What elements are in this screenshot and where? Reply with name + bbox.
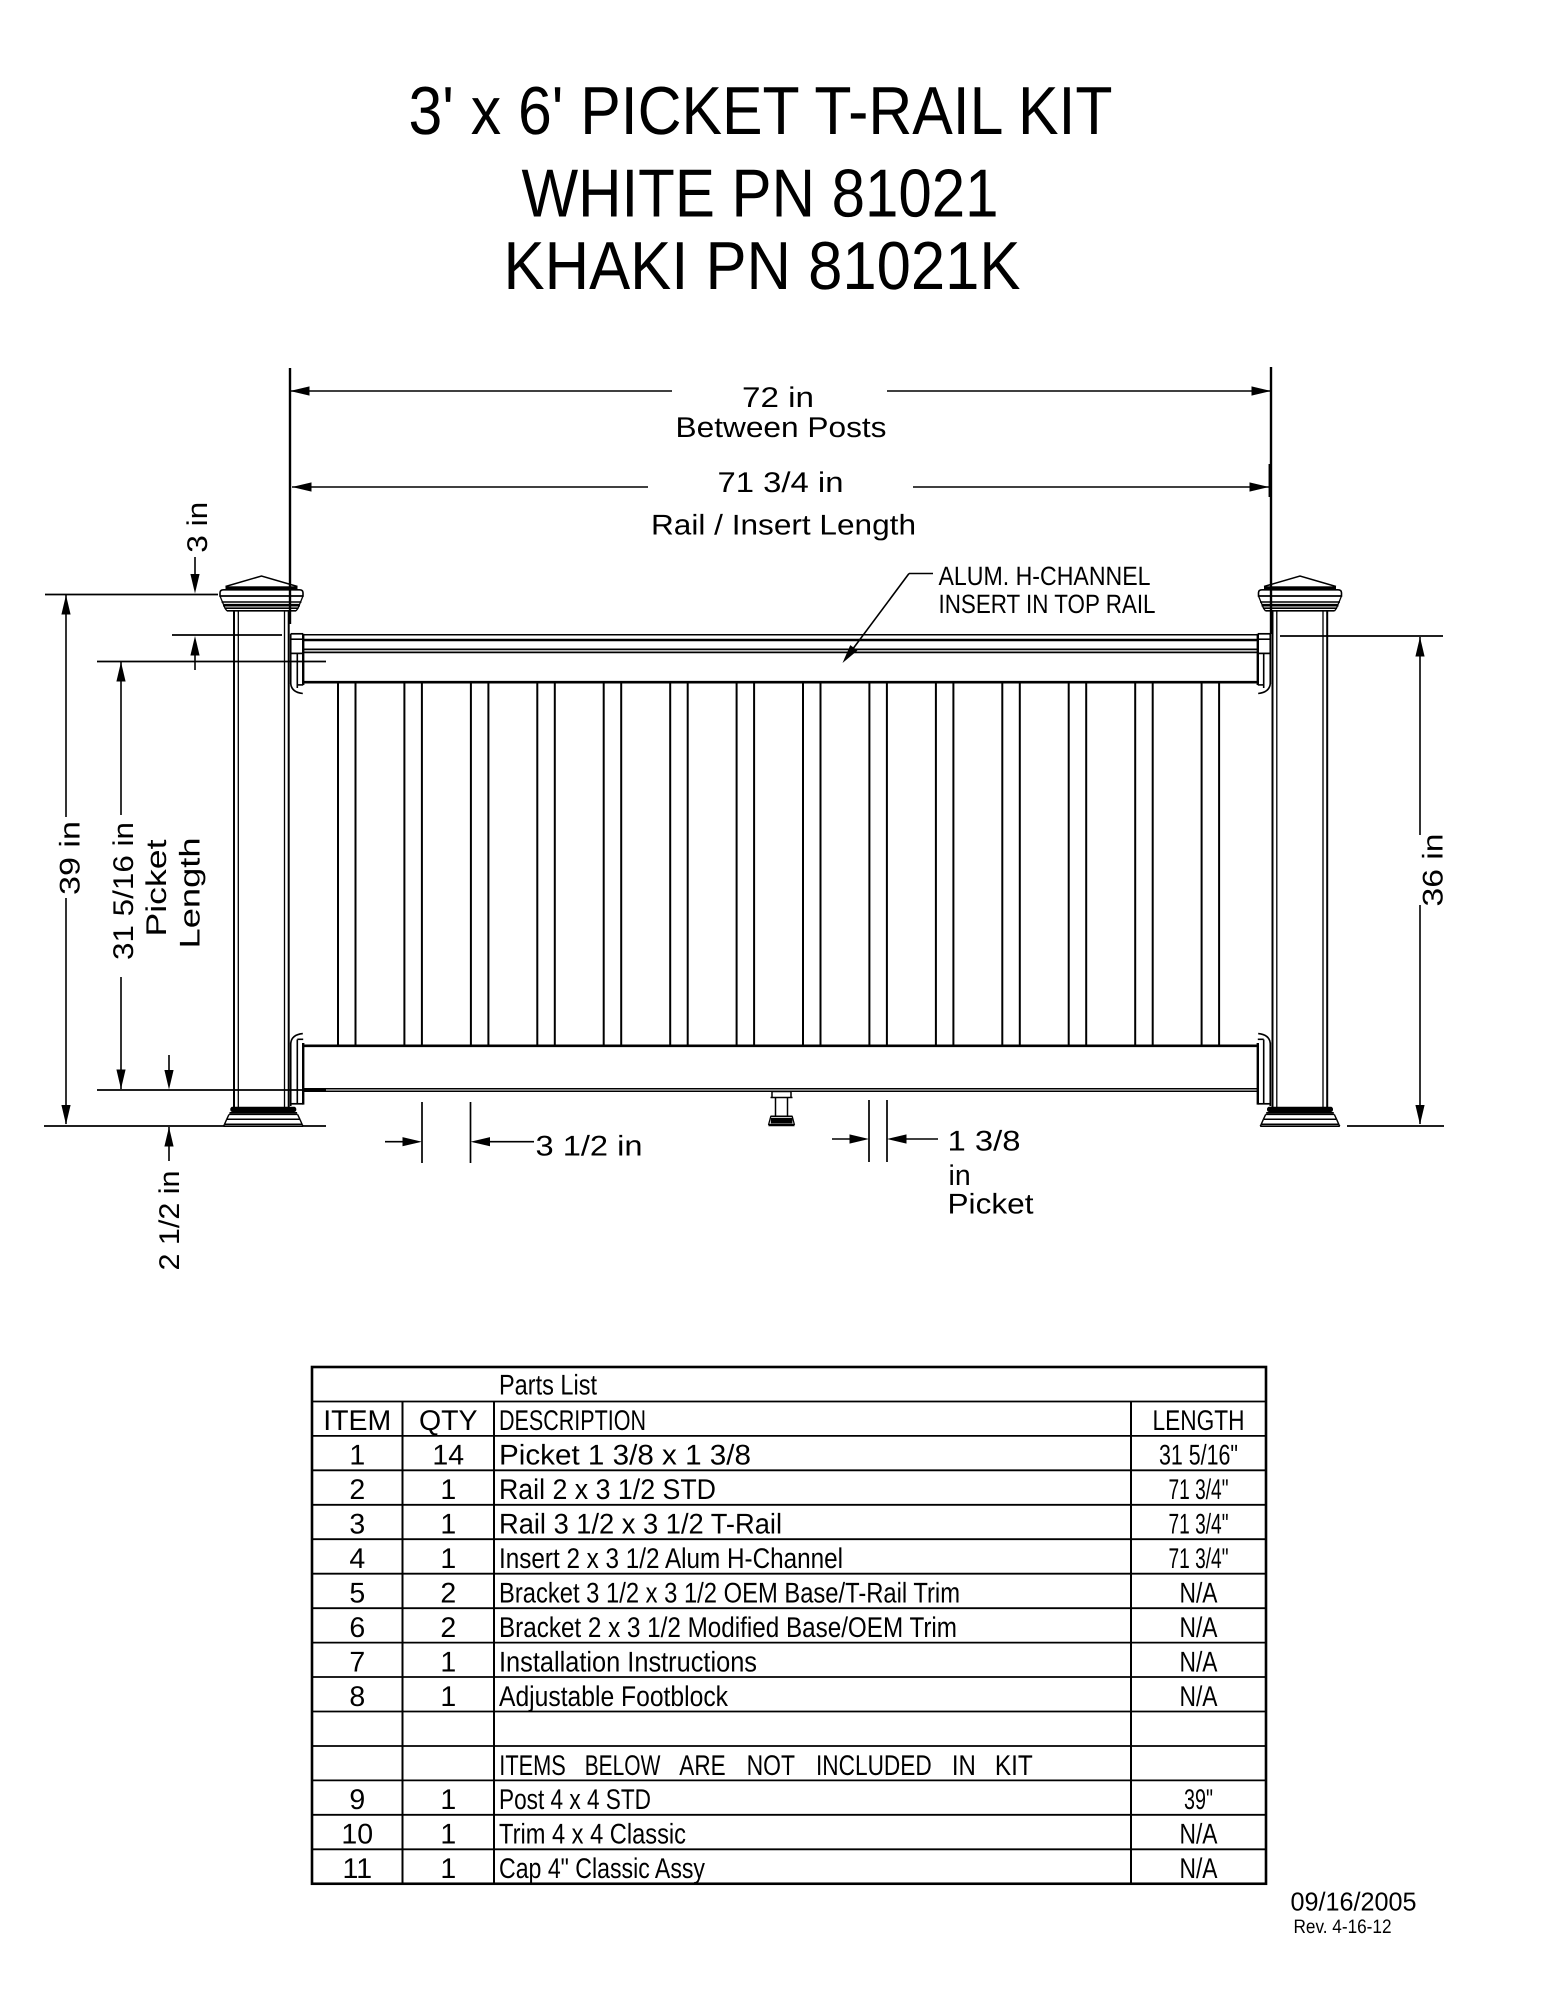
svg-text:1: 1 [349, 1440, 365, 1472]
svg-text:Insert 2 x 3 1/2 Alum H-Channe: Insert 2 x 3 1/2 Alum H-Channel [499, 1543, 843, 1575]
svg-text:1: 1 [440, 1646, 456, 1678]
svg-text:Rev. 4-16-12: Rev. 4-16-12 [1294, 1916, 1392, 1938]
svg-text:N/A: N/A [1180, 1853, 1218, 1885]
svg-text:KHAKI PN 81021K: KHAKI PN 81021K [504, 228, 1021, 304]
svg-text:Length: Length [175, 838, 207, 949]
svg-text:72 in: 72 in [742, 382, 814, 414]
svg-text:1: 1 [440, 1474, 456, 1506]
svg-text:1: 1 [440, 1853, 456, 1885]
svg-text:39 in: 39 in [55, 821, 87, 895]
svg-text:N/A: N/A [1180, 1612, 1218, 1644]
svg-text:39": 39" [1184, 1784, 1213, 1816]
svg-text:11: 11 [342, 1853, 372, 1885]
svg-text:31 5/16 in: 31 5/16 in [108, 822, 140, 960]
svg-text:IN: IN [952, 1750, 976, 1782]
svg-text:71 3/4": 71 3/4" [1169, 1509, 1229, 1541]
svg-text:3 1/2 in: 3 1/2 in [536, 1131, 643, 1163]
svg-text:Rail 2 x 3 1/2 STD: Rail 2 x 3 1/2 STD [499, 1474, 716, 1506]
svg-text:ITEMS: ITEMS [499, 1750, 566, 1782]
svg-text:Trim 4 x 4 Classic: Trim 4 x 4 Classic [499, 1819, 686, 1851]
svg-text:3 in: 3 in [182, 502, 214, 553]
svg-text:in: in [949, 1160, 971, 1192]
svg-text:71 3/4 in: 71 3/4 in [718, 467, 844, 499]
svg-text:NOT: NOT [747, 1750, 795, 1782]
svg-text:71 3/4": 71 3/4" [1169, 1474, 1229, 1506]
svg-text:8: 8 [349, 1681, 365, 1713]
svg-text:6: 6 [349, 1612, 365, 1644]
svg-text:1: 1 [440, 1784, 456, 1816]
svg-text:QTY: QTY [419, 1405, 478, 1437]
svg-text:36 in: 36 in [1418, 834, 1450, 907]
svg-text:Installation Instructions: Installation Instructions [499, 1646, 757, 1678]
svg-text:N/A: N/A [1180, 1578, 1218, 1610]
svg-text:INSERT IN TOP RAIL: INSERT IN TOP RAIL [939, 589, 1156, 619]
svg-text:Picket: Picket [141, 839, 173, 936]
svg-text:KIT: KIT [995, 1750, 1033, 1782]
svg-text:4: 4 [349, 1543, 365, 1575]
svg-text:2: 2 [440, 1578, 456, 1610]
svg-text:71 3/4": 71 3/4" [1169, 1543, 1229, 1575]
svg-text:Rail 3 1/2 x 3 1/2 T-Rail: Rail 3 1/2 x 3 1/2 T-Rail [499, 1509, 782, 1541]
svg-text:Bracket 3 1/2 x 3 1/2 OEM Base: Bracket 3 1/2 x 3 1/2 OEM Base/T-Rail Tr… [499, 1578, 960, 1610]
svg-text:5: 5 [349, 1578, 365, 1610]
svg-text:ALUM. H-CHANNEL: ALUM. H-CHANNEL [939, 561, 1151, 591]
svg-text:DESCRIPTION: DESCRIPTION [499, 1405, 646, 1437]
svg-text:7: 7 [349, 1646, 365, 1678]
svg-text:1: 1 [440, 1819, 456, 1851]
svg-text:Adjustable Footblock: Adjustable Footblock [499, 1681, 729, 1713]
svg-text:ITEM: ITEM [323, 1405, 391, 1437]
svg-text:1: 1 [440, 1543, 456, 1575]
svg-text:N/A: N/A [1180, 1646, 1218, 1678]
svg-text:9: 9 [349, 1784, 365, 1816]
svg-text:N/A: N/A [1180, 1681, 1218, 1713]
svg-text:Cap 4" Classic Assy: Cap 4" Classic Assy [499, 1853, 706, 1885]
svg-text:WHITE PN 81021: WHITE PN 81021 [522, 156, 999, 232]
svg-text:10: 10 [341, 1819, 373, 1851]
svg-text:Between Posts: Between Posts [676, 412, 887, 444]
svg-text:14: 14 [432, 1440, 464, 1472]
svg-text:Rail / Insert Length: Rail / Insert Length [651, 510, 916, 542]
svg-text:Bracket 2 x 3 1/2 Modified Bas: Bracket 2 x 3 1/2 Modified Base/OEM Trim [499, 1612, 957, 1644]
svg-text:2: 2 [440, 1612, 456, 1644]
svg-text:09/16/2005: 09/16/2005 [1291, 1887, 1417, 1917]
svg-text:3: 3 [349, 1509, 365, 1541]
svg-text:31 5/16": 31 5/16" [1159, 1440, 1238, 1472]
svg-text:ARE: ARE [679, 1750, 725, 1782]
svg-text:Post 4 x 4 STD: Post 4 x 4 STD [499, 1784, 651, 1816]
svg-text:Parts List: Parts List [499, 1370, 597, 1402]
svg-text:1: 1 [440, 1509, 456, 1541]
svg-text:INCLUDED: INCLUDED [816, 1750, 932, 1782]
svg-text:1 3/8: 1 3/8 [948, 1126, 1021, 1158]
svg-text:N/A: N/A [1180, 1819, 1218, 1851]
svg-text:2: 2 [349, 1474, 365, 1506]
svg-text:LENGTH: LENGTH [1153, 1405, 1245, 1437]
svg-text:Picket: Picket [948, 1189, 1034, 1221]
svg-text:2 1/2 in: 2 1/2 in [154, 1171, 186, 1271]
svg-text:3' x 6' PICKET T-RAIL KIT: 3' x 6' PICKET T-RAIL KIT [409, 73, 1113, 149]
svg-text:Picket 1 3/8 x 1 3/8: Picket 1 3/8 x 1 3/8 [499, 1440, 751, 1472]
svg-text:BELOW: BELOW [585, 1750, 661, 1782]
svg-text:1: 1 [440, 1681, 456, 1713]
